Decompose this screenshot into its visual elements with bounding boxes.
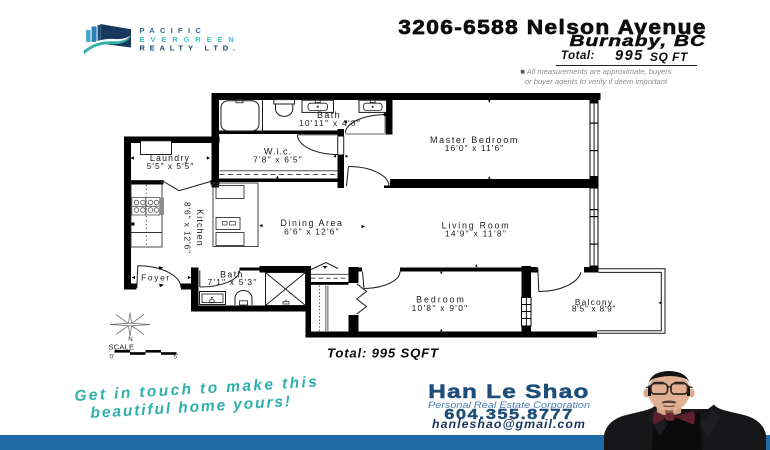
- svg-text:7'8" x 6'5": 7'8" x 6'5": [253, 155, 303, 165]
- svg-text:10'11" x 4'8": 10'11" x 4'8": [299, 118, 361, 128]
- svg-text:10'8" x 9'0": 10'8" x 9'0": [412, 303, 469, 313]
- svg-text:5'5" x 5'5": 5'5" x 5'5": [147, 161, 195, 171]
- svg-text:6'6" x 12'6": 6'6" x 12'6": [284, 226, 340, 236]
- svg-text:14'9" x 11'8": 14'9" x 11'8": [445, 228, 507, 238]
- svg-text:Kitchen: Kitchen: [195, 209, 205, 247]
- svg-text:Foyer: Foyer: [141, 272, 171, 282]
- svg-text:Total: 995 SQFT: Total: 995 SQFT: [327, 346, 439, 361]
- svg-text:8'6" x 12'6": 8'6" x 12'6": [183, 202, 193, 254]
- svg-text:0': 0': [110, 354, 115, 361]
- svg-text:5': 5': [174, 354, 179, 361]
- svg-text:7'1" x 5'3": 7'1" x 5'3": [208, 277, 258, 287]
- svg-text:8'5" x 8'9": 8'5" x 8'9": [572, 303, 616, 313]
- svg-text:16'0" x 11'6": 16'0" x 11'6": [445, 143, 505, 153]
